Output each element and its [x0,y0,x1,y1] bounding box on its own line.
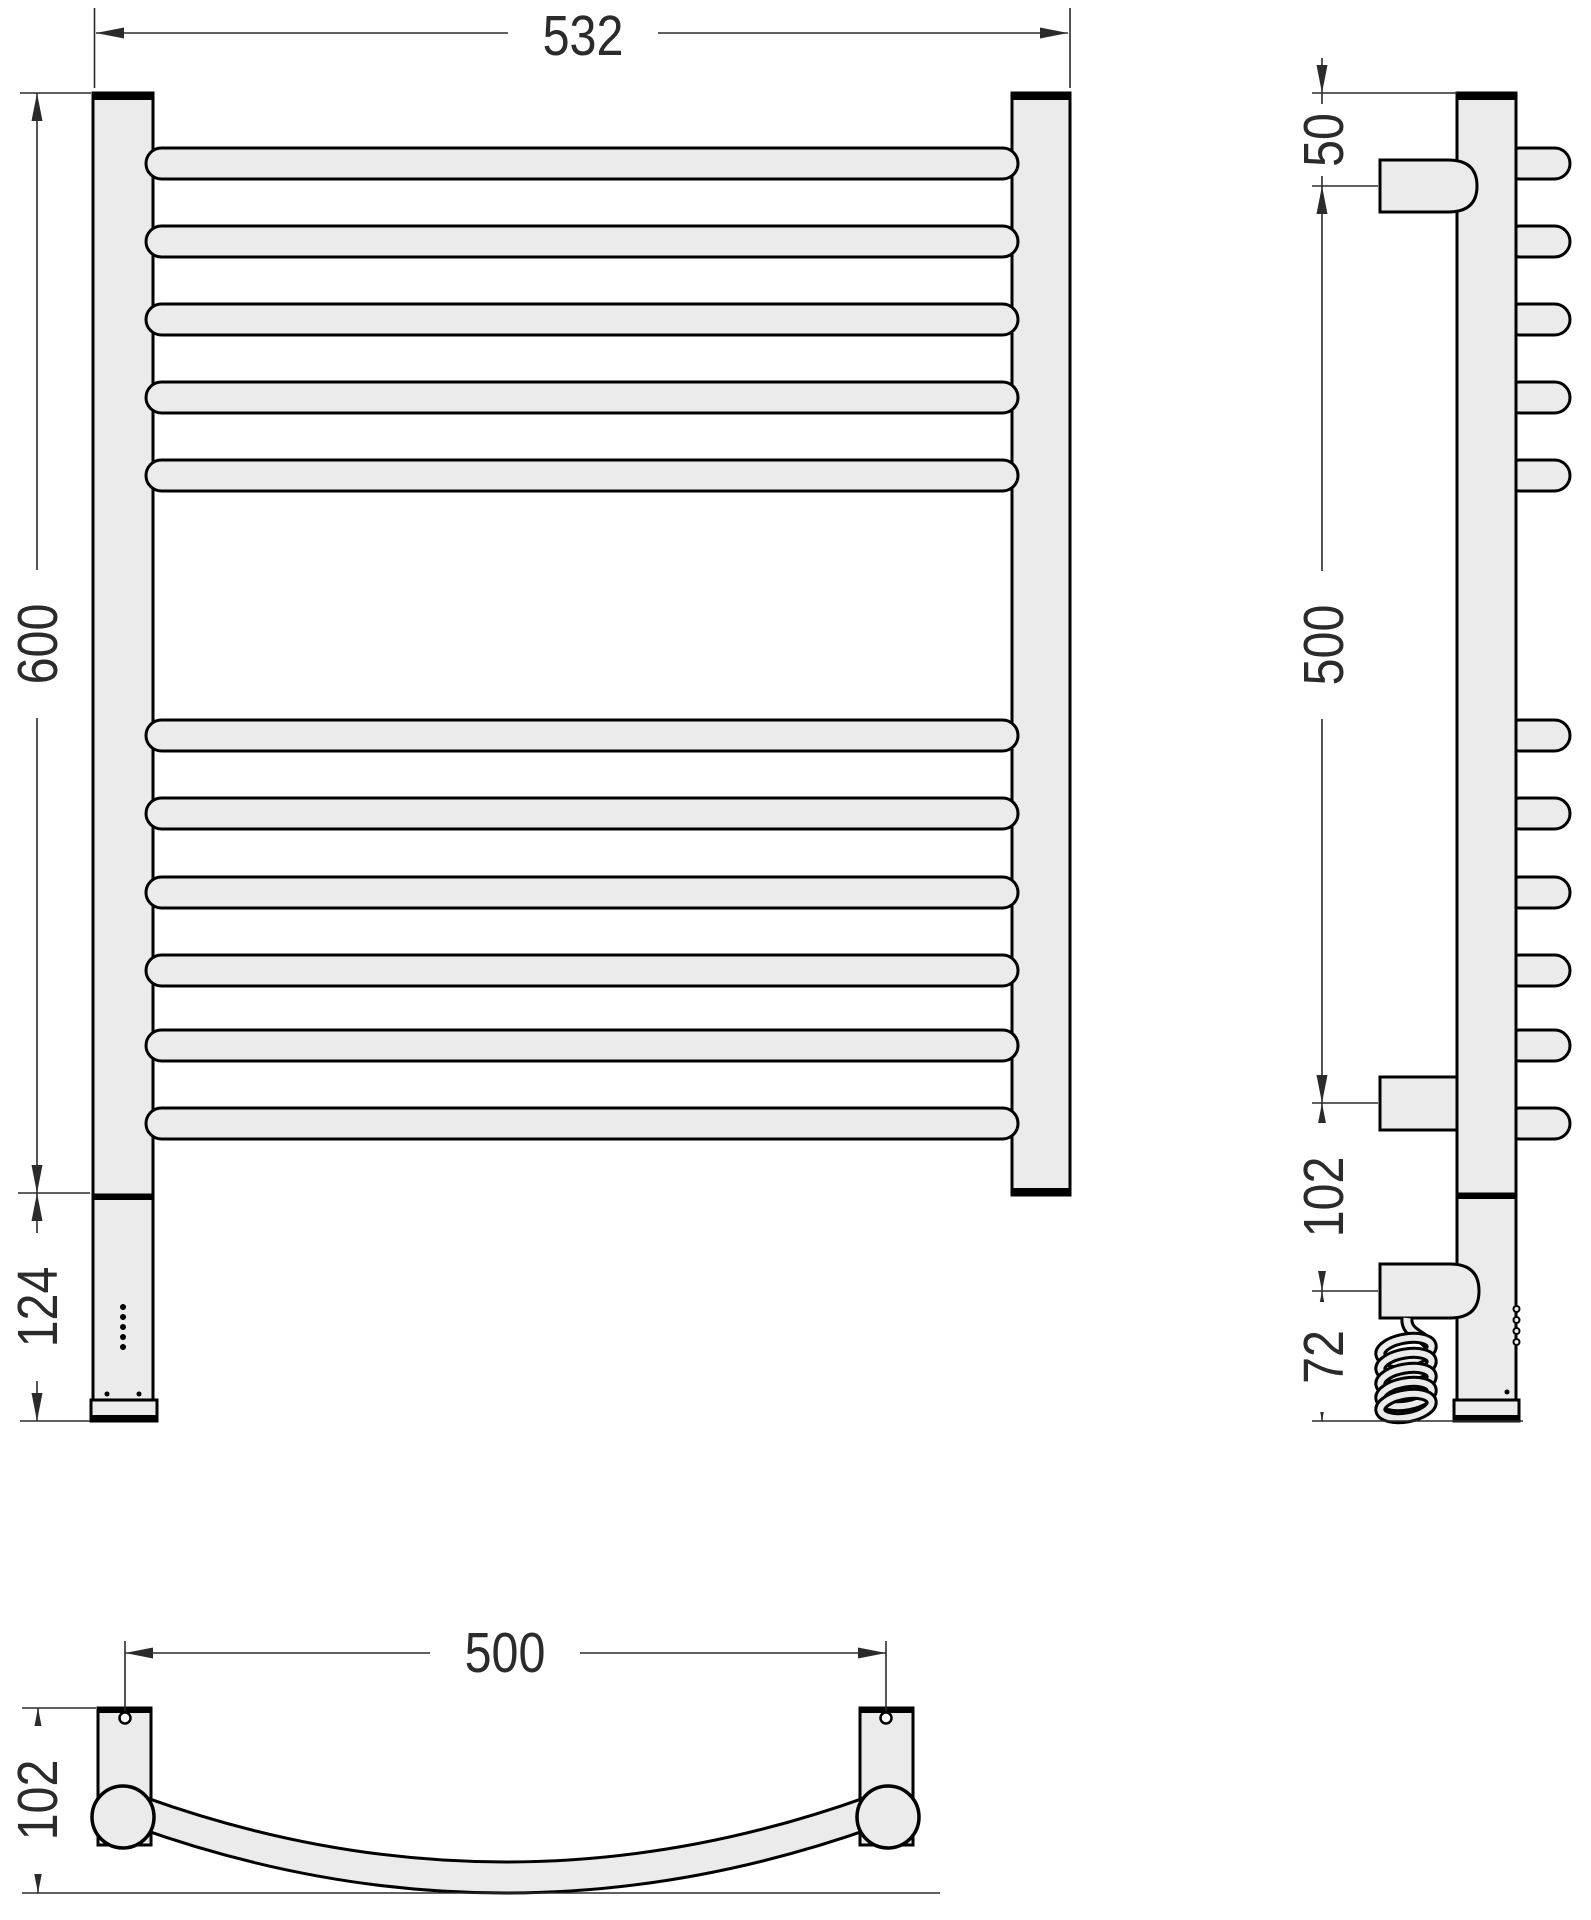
side-view [1380,93,1570,1421]
front-height-label: 600 [6,604,70,685]
heating-element-housing [1380,1264,1479,1318]
dimension-labels: 532 600 124 50 500 102 72 500 102 [6,4,1356,1840]
curved-towel-bar-fill [140,1812,871,1878]
towel-bar [146,460,1018,491]
electric-control-box [93,1195,153,1400]
technical-drawing-page: 532 600 124 50 500 102 72 500 102 [0,0,1591,1920]
bracket-boss-left [92,1786,154,1848]
side-bracket-span-label: 500 [1292,605,1356,686]
towel-bar [146,955,1018,986]
bottom-depth-label: 102 [6,1760,70,1841]
towel-bar [146,877,1018,908]
dimension-lines [18,8,1523,1893]
wall-bracket-lower [1380,1077,1457,1130]
side-bracket-to-heater-label: 102 [1292,1157,1356,1238]
power-cable-coil [1378,1318,1433,1422]
towel-bars [146,148,1018,1139]
side-top-offset-label: 50 [1292,113,1356,167]
towel-bar [146,304,1018,335]
bracket-boss-right [857,1786,919,1848]
towel-bar [146,148,1018,179]
side-rail [1457,93,1516,1194]
towel-bar [146,1108,1018,1139]
wall-bracket-upper [1380,160,1477,212]
front-width-label: 532 [543,4,624,68]
mount-hole-left [120,1713,131,1724]
towel-bar [146,226,1018,257]
bottom-mount-spacing-label: 500 [465,1621,546,1685]
bottom-view [92,1708,919,1878]
towel-bar [146,382,1018,413]
towel-bar [146,720,1018,751]
mount-hole-right [881,1713,892,1724]
front-right-post [1012,93,1070,1195]
towel-warmer-drawing: 532 600 124 50 500 102 72 500 102 [0,0,1591,1920]
towel-bar [146,1030,1018,1061]
front-lower-section-label: 124 [6,1267,70,1348]
towel-bar [146,798,1018,829]
front-view [91,93,1070,1421]
dimension-label-gaps [12,8,1348,1874]
side-heater-to-base-label: 72 [1292,1330,1356,1384]
front-left-post [93,93,153,1195]
detail-dot [1505,1390,1510,1395]
